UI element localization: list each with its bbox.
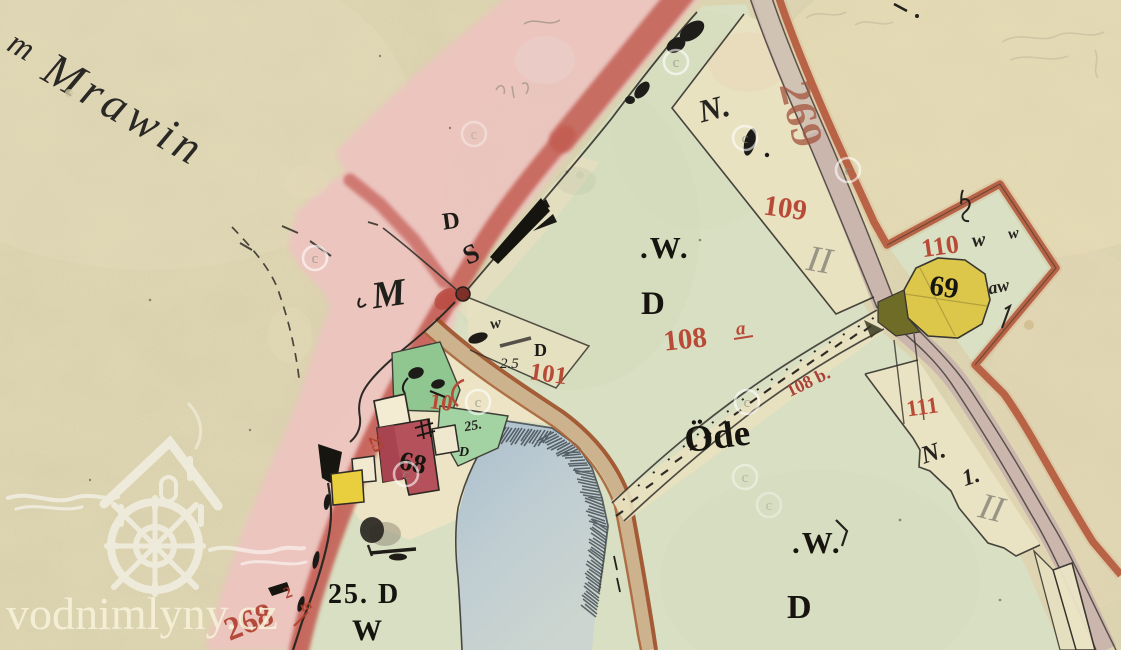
svg-text:c: c [312, 251, 319, 267]
svg-text:c: c [471, 127, 478, 143]
svg-text:D: D [641, 286, 665, 322]
svg-text:D: D [458, 445, 469, 460]
svg-text:D: D [534, 340, 547, 360]
svg-text:c: c [742, 470, 749, 486]
svg-text:109: 109 [761, 189, 809, 227]
svg-text:D: D [787, 589, 812, 626]
svg-text:69: 69 [928, 270, 961, 306]
svg-text:.W.: .W. [792, 525, 842, 560]
svg-text:.W.: .W. [640, 230, 690, 265]
svg-text:W: W [352, 614, 382, 647]
svg-text:c: c [475, 395, 482, 411]
svg-text:25. D: 25. D [328, 579, 400, 610]
svg-text:c: c [742, 131, 749, 147]
svg-text:c: c [845, 163, 852, 179]
svg-text:c: c [744, 395, 751, 411]
svg-text:111: 111 [905, 392, 940, 421]
svg-text:25.: 25. [462, 417, 483, 435]
svg-text:Öde: Öde [682, 413, 752, 462]
svg-text:M: M [368, 271, 409, 318]
svg-text:110: 110 [919, 229, 960, 263]
svg-text:c: c [766, 498, 773, 514]
svg-text:vodnimlyny.cz: vodnimlyny.cz [6, 588, 278, 639]
svg-text:c: c [673, 55, 680, 71]
svg-text:D: D [441, 207, 462, 235]
svg-text:c: c [403, 467, 410, 483]
svg-text:108: 108 [662, 321, 709, 357]
svg-text:2.5: 2.5 [500, 356, 519, 372]
svg-text:101: 101 [528, 358, 569, 390]
